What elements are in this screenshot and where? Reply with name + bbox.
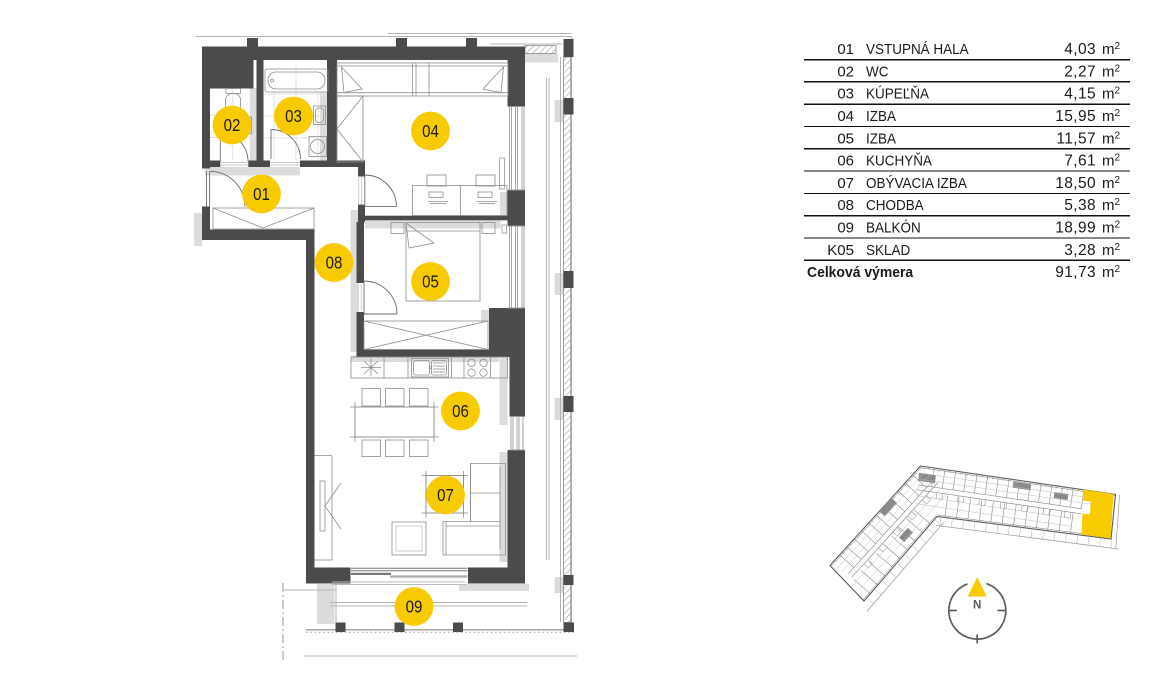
svg-text:m2: m2 xyxy=(1102,63,1121,80)
svg-text:05: 05 xyxy=(422,272,439,291)
svg-text:K05: K05 xyxy=(827,242,854,259)
svg-text:4,15: 4,15 xyxy=(1064,86,1096,103)
svg-text:02: 02 xyxy=(224,116,241,135)
svg-text:KÚPEĽŇA: KÚPEĽŇA xyxy=(866,85,929,103)
svg-text:WC: WC xyxy=(866,64,888,81)
svg-text:01: 01 xyxy=(837,41,854,58)
svg-text:m2: m2 xyxy=(1102,108,1121,125)
svg-text:m2: m2 xyxy=(1102,264,1121,281)
svg-text:m2: m2 xyxy=(1102,41,1121,58)
svg-text:m2: m2 xyxy=(1102,220,1121,237)
svg-text:CHODBA: CHODBA xyxy=(866,198,924,215)
svg-text:m2: m2 xyxy=(1102,175,1121,192)
svg-text:OBÝVACIA IZBA: OBÝVACIA IZBA xyxy=(866,174,967,192)
svg-text:01: 01 xyxy=(253,185,270,204)
svg-text:09: 09 xyxy=(837,220,854,237)
svg-text:04: 04 xyxy=(422,122,439,141)
svg-text:02: 02 xyxy=(837,63,854,80)
svg-text:04: 04 xyxy=(837,108,854,125)
svg-text:m2: m2 xyxy=(1102,130,1121,147)
svg-text:09: 09 xyxy=(406,597,423,616)
svg-text:BALKÓN: BALKÓN xyxy=(866,219,921,237)
svg-text:07: 07 xyxy=(837,175,854,192)
svg-text:7,61: 7,61 xyxy=(1064,153,1096,170)
svg-text:IZBA: IZBA xyxy=(866,131,896,148)
svg-text:03: 03 xyxy=(837,86,854,103)
svg-text:18,99: 18,99 xyxy=(1055,220,1096,237)
svg-text:5,38: 5,38 xyxy=(1064,197,1096,214)
svg-text:SKLAD: SKLAD xyxy=(866,242,910,259)
svg-text:m2: m2 xyxy=(1102,153,1121,170)
svg-text:m2: m2 xyxy=(1102,86,1121,103)
svg-text:Celková výmera: Celková výmera xyxy=(807,265,914,282)
svg-text:18,50: 18,50 xyxy=(1055,175,1096,192)
svg-text:15,95: 15,95 xyxy=(1055,108,1096,125)
svg-text:2,27: 2,27 xyxy=(1064,63,1096,80)
svg-text:4,03: 4,03 xyxy=(1064,41,1096,58)
svg-text:07: 07 xyxy=(437,486,454,505)
svg-text:IZBA: IZBA xyxy=(866,108,896,125)
svg-text:05: 05 xyxy=(837,130,854,147)
svg-text:08: 08 xyxy=(837,197,854,214)
svg-text:m2: m2 xyxy=(1102,242,1121,259)
svg-text:06: 06 xyxy=(837,153,854,170)
svg-text:91,73: 91,73 xyxy=(1055,264,1096,281)
svg-text:3,28: 3,28 xyxy=(1064,242,1096,259)
svg-text:N: N xyxy=(973,600,981,612)
svg-text:06: 06 xyxy=(452,402,469,421)
svg-text:11,57: 11,57 xyxy=(1056,130,1096,147)
svg-text:03: 03 xyxy=(285,107,302,126)
svg-text:KUCHYŇA: KUCHYŇA xyxy=(866,152,932,170)
svg-text:08: 08 xyxy=(326,253,343,272)
svg-text:m2: m2 xyxy=(1102,197,1121,214)
svg-text:VSTUPNÁ HALA: VSTUPNÁ HALA xyxy=(866,40,969,58)
